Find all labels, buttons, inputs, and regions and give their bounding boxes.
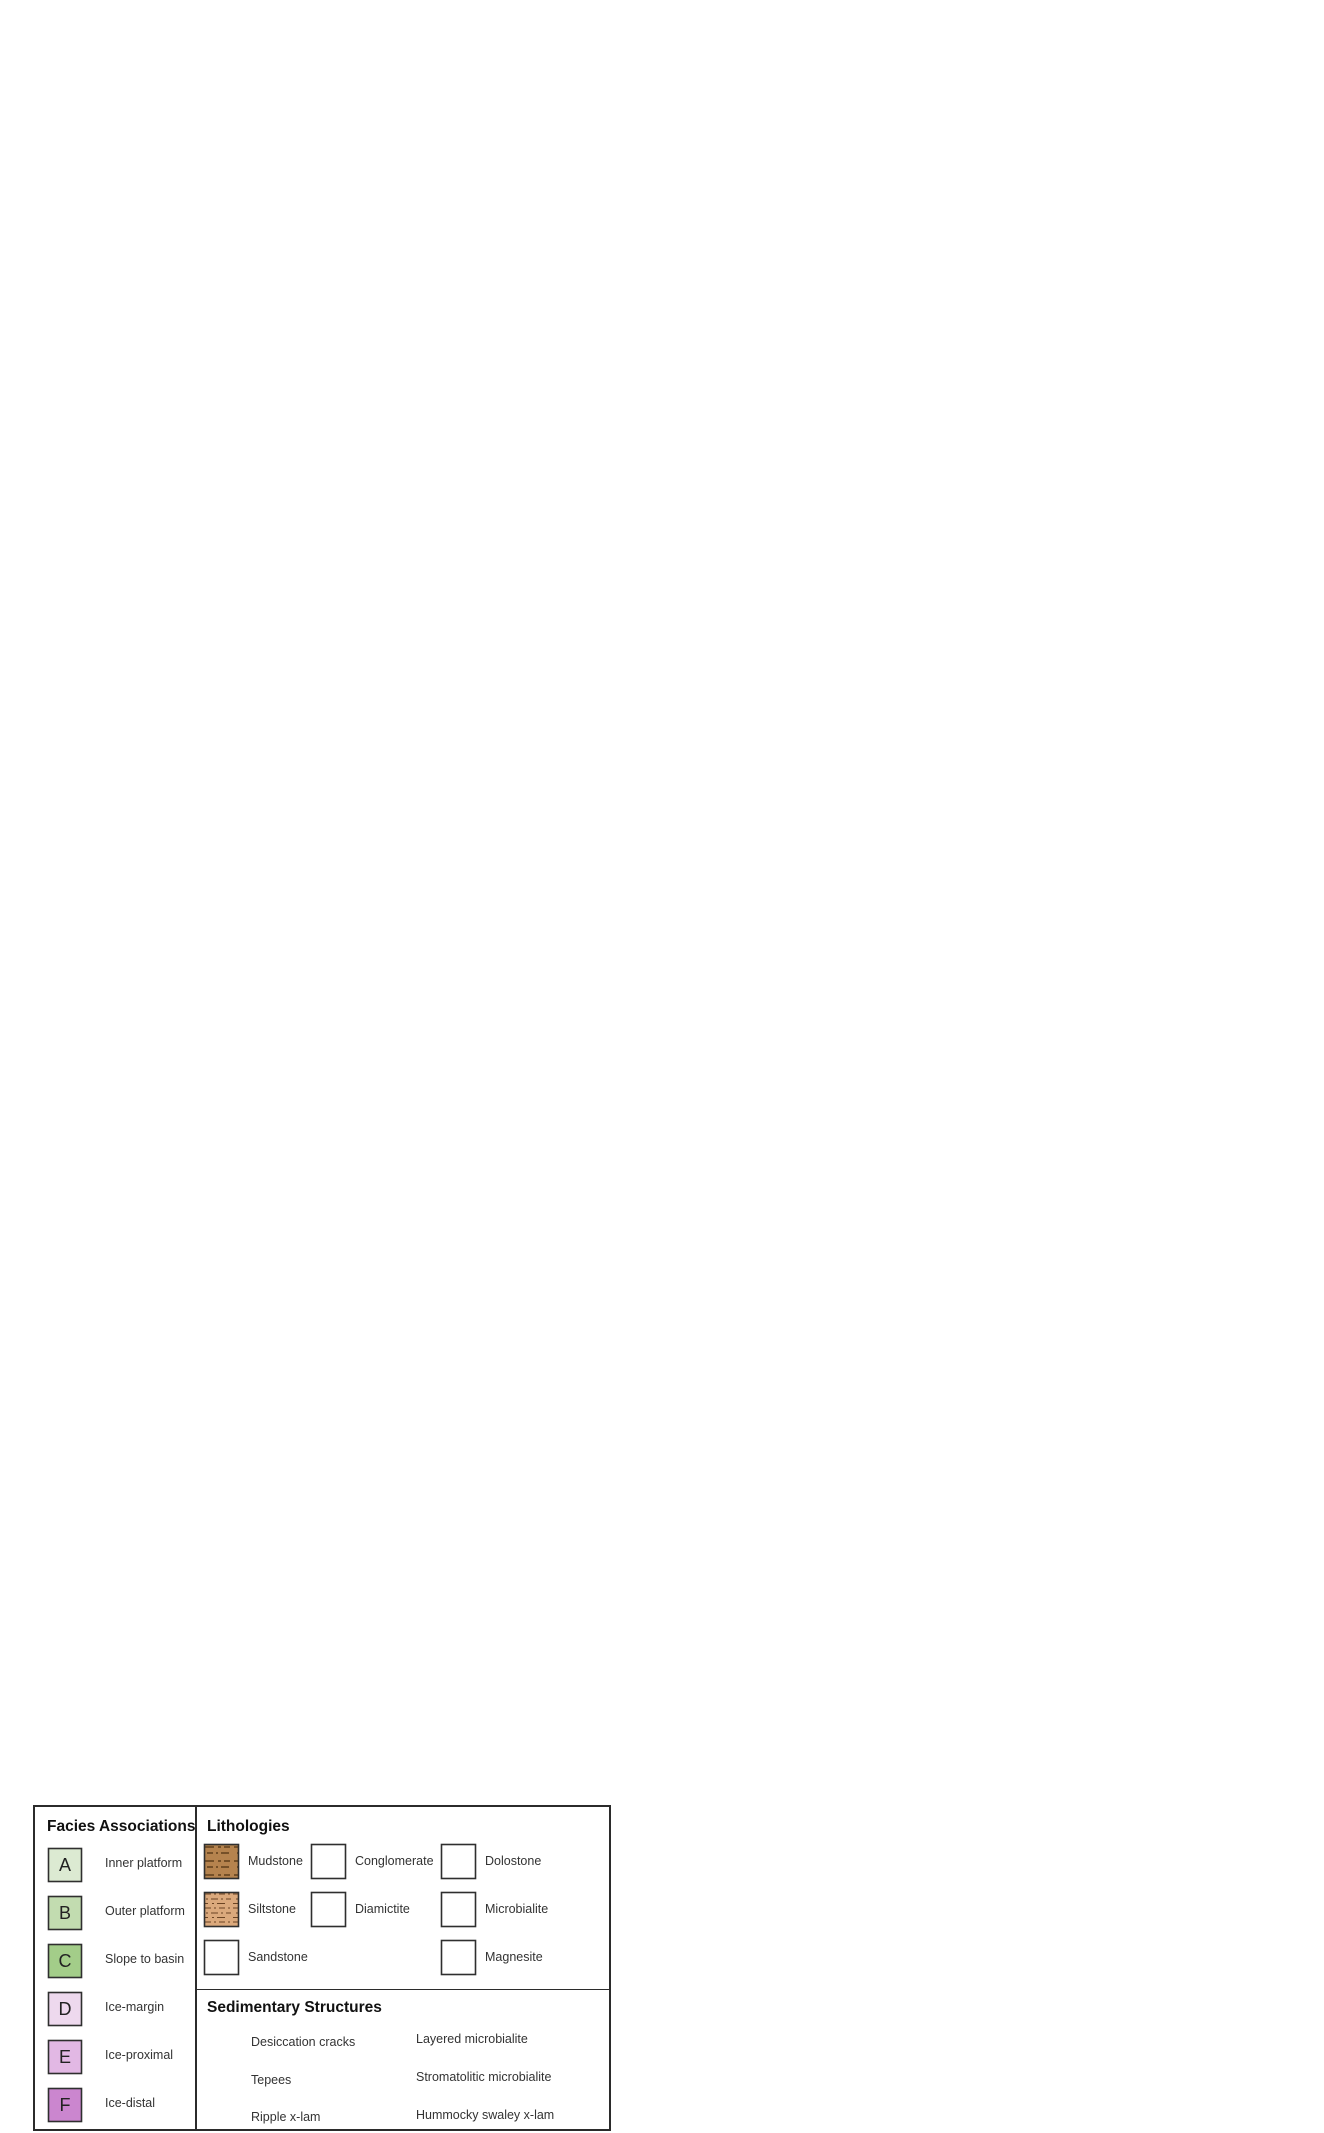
struct-label: Hummocky swaley x-lam [416,2108,554,2122]
dolostone-swatch [442,1845,476,1879]
microbialite-swatch [442,1893,476,1927]
facies-label: Ice-margin [105,2000,164,2014]
struct-label: Desiccation cracks [251,2035,355,2049]
magnesite-swatch [442,1941,476,1975]
facies-label: Ice-proximal [105,2048,173,2062]
legend-right-section: Lithologies Mudstone Siltstone Sandstone… [197,1807,611,2129]
facies-code: B [47,1895,83,1931]
conglomerate-swatch [312,1845,346,1879]
facies-code: A [47,1847,83,1883]
diamictite-swatch [312,1893,346,1927]
mudstone-swatch [205,1845,239,1879]
legend-divider [197,1989,611,1990]
lith-label: Siltstone [248,1902,296,1916]
facies-code: D [47,1991,83,2027]
facies-code: F [47,2087,83,2123]
structures-header: Sedimentary Structures [207,1999,382,2017]
lith-label: Diamictite [355,1902,410,1916]
ripple-x-lam-icon [205,2105,247,2123]
tepees-icon [205,2068,247,2088]
facies-label: Slope to basin [105,1952,184,1966]
legend-box: Facies Associations A Inner platform B O… [33,1805,611,2131]
lith-label: Sandstone [248,1950,308,1964]
lith-label: Magnesite [485,1950,543,1964]
facies-code: E [47,2039,83,2075]
facies-code: C [47,1943,83,1979]
lith-label: Conglomerate [355,1854,434,1868]
stromatolitic-microbialite-icon [370,2065,412,2091]
struct-label: Stromatolitic microbialite [416,2070,551,2084]
sandstone-swatch [205,1941,239,1975]
facies-label: Outer platform [105,1904,185,1918]
siltstone-swatch [205,1893,239,1927]
lith-label: Dolostone [485,1854,541,1868]
desiccation-cracks-icon [205,2030,247,2046]
hummocky-swaley-icon [370,2103,412,2127]
legend-facies-section: Facies Associations A Inner platform B O… [35,1807,197,2129]
facies-header: Facies Associations [47,1818,195,1836]
figure-canvas: relative sea level fresh water input lan… [0,0,1324,2133]
struct-label: Ripple x-lam [251,2110,320,2124]
lithologies-header: Lithologies [207,1818,290,1836]
struct-label: Layered microbialite [416,2032,528,2046]
lith-label: Mudstone [248,1854,303,1868]
struct-label: Tepees [251,2073,291,2087]
layered-microbialite-icon [370,2027,412,2051]
facies-label: Inner platform [105,1856,182,1870]
lith-label: Microbialite [485,1902,548,1916]
facies-label: Ice-distal [105,2096,155,2110]
